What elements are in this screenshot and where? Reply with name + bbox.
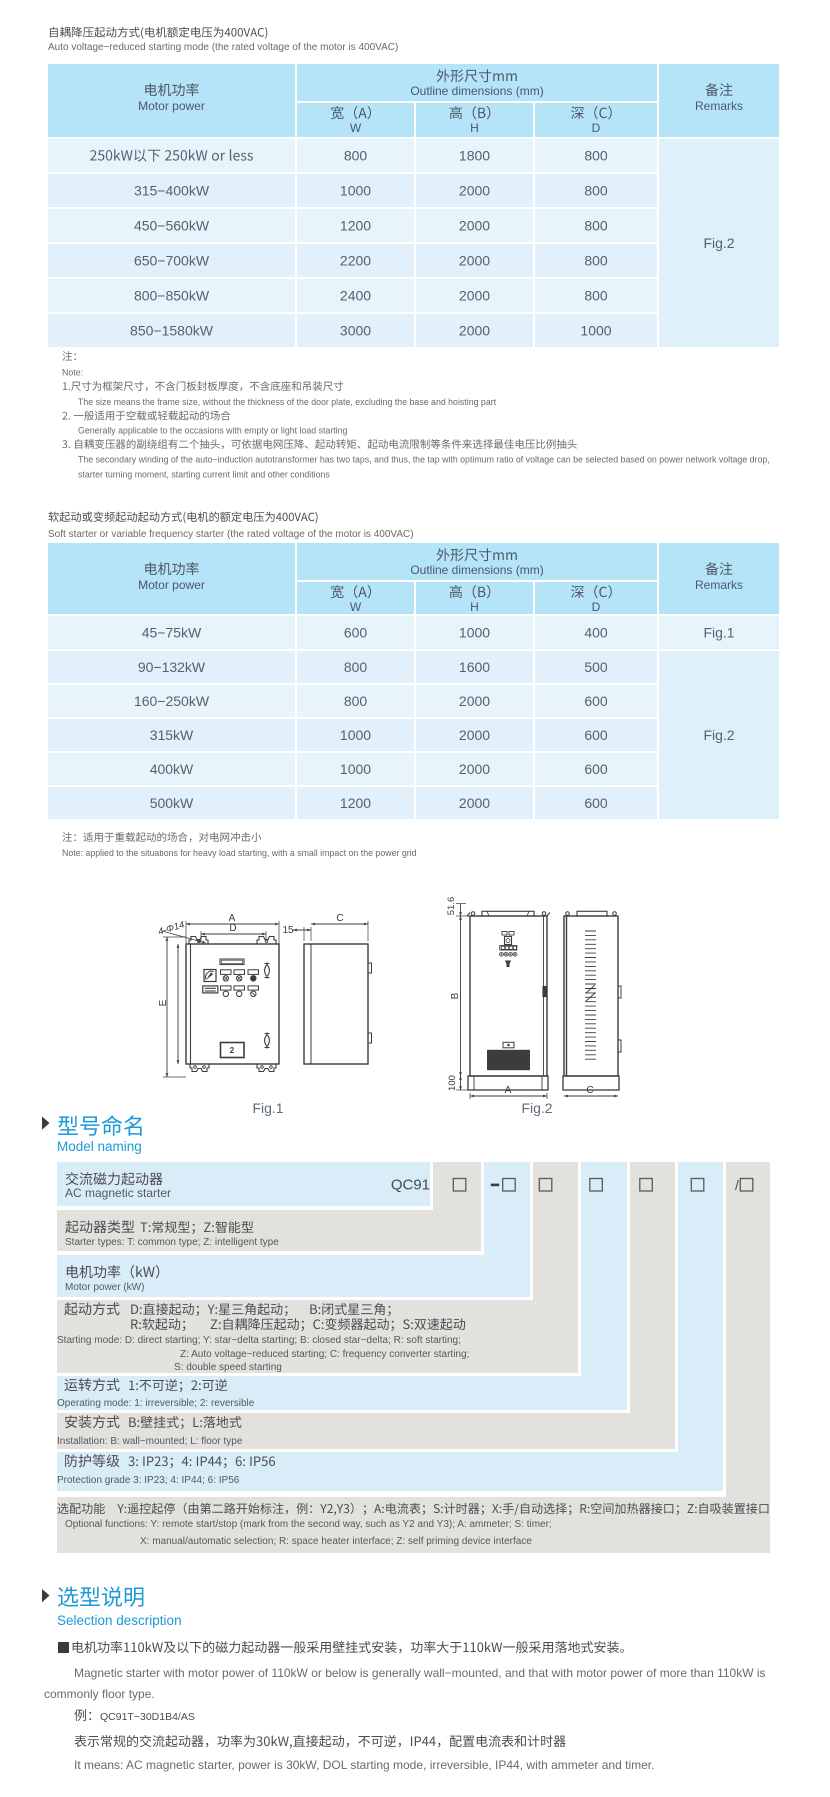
svg-text:400kW: 400kW	[150, 761, 194, 777]
svg-text:W: W	[350, 600, 362, 614]
svg-text:Magnetic starter with motor po: Magnetic starter with motor power of 110…	[74, 1666, 766, 1680]
svg-text:/: /	[735, 1177, 739, 1193]
svg-text:W: W	[350, 121, 362, 135]
svg-text:C: C	[586, 1085, 593, 1096]
svg-text:Outline dimensions (mm): Outline dimensions (mm)	[410, 84, 543, 98]
svg-text:Protection grade 3: IP23; 4:: Protection grade 3: IP23; 4: IP44; 6: IP…	[57, 1475, 240, 1486]
svg-text:D: D	[592, 121, 601, 135]
svg-text:850−1580kW: 850−1580kW	[130, 323, 214, 339]
svg-text:2000: 2000	[459, 323, 490, 339]
svg-text:600: 600	[584, 795, 608, 811]
svg-text:H: H	[470, 121, 479, 135]
svg-text:51.6: 51.6	[446, 897, 457, 916]
svg-text:1200: 1200	[340, 795, 371, 811]
svg-text:B: B	[450, 992, 461, 999]
svg-text:Operating mode: 1: irreversibl: Operating mode: 1: irreversible; 2: reve…	[57, 1398, 255, 1409]
svg-text:600: 600	[584, 727, 608, 743]
svg-text:1800: 1800	[459, 148, 490, 164]
svg-text:600: 600	[344, 625, 368, 641]
svg-text:Remarks: Remarks	[695, 99, 743, 113]
svg-text:160−250kW: 160−250kW	[134, 693, 210, 709]
svg-text:3000: 3000	[340, 323, 371, 339]
svg-text:Fig.2: Fig.2	[521, 1100, 552, 1116]
svg-text:1000: 1000	[580, 323, 611, 339]
svg-text:Note:: Note:	[62, 368, 83, 378]
svg-text:The secondary winding of the a: The secondary winding of the auto−induct…	[78, 455, 770, 465]
svg-text:Motor power: Motor power	[138, 578, 205, 592]
svg-text:starter turning moment, starti: starter turning moment, starting current…	[78, 470, 330, 480]
svg-text:100: 100	[447, 1075, 458, 1091]
svg-text:2000: 2000	[459, 795, 490, 811]
svg-text:2000: 2000	[459, 218, 490, 234]
svg-text:D: D	[592, 600, 601, 614]
svg-text:Fig.2: Fig.2	[703, 235, 734, 251]
svg-text:X: manual/automatic selection;: X: manual/automatic selection; R: space …	[140, 1536, 532, 1547]
svg-text:Soft starter or variable frequ: Soft starter or variable frequency start…	[48, 529, 414, 540]
svg-text:800: 800	[584, 288, 608, 304]
svg-text:S: double speed starting: S: double speed starting	[174, 1362, 282, 1373]
svg-text:Optional functions: Y: remote: Optional functions: Y: remote start/stop…	[65, 1519, 552, 1530]
svg-text:450−560kW: 450−560kW	[134, 218, 210, 234]
svg-text:1000: 1000	[340, 761, 371, 777]
svg-text:1200: 1200	[340, 218, 371, 234]
svg-text:800: 800	[344, 693, 368, 709]
svg-text:800−850kW: 800−850kW	[134, 288, 210, 304]
svg-text:H: H	[470, 600, 479, 614]
svg-text:Note: applied to the situation: Note: applied to the situations for heav…	[62, 848, 417, 858]
svg-text:Fig.1: Fig.1	[703, 625, 734, 641]
svg-text:2000: 2000	[459, 183, 490, 199]
svg-text:2200: 2200	[340, 253, 371, 269]
svg-text:Starter types: T: common type;: Starter types: T: common type; Z: intell…	[65, 1237, 279, 1248]
svg-text:AC magnetic starter: AC magnetic starter	[65, 1186, 171, 1200]
svg-text:800: 800	[584, 183, 608, 199]
svg-text:Z: Auto voltage−reduced starti: Z: Auto voltage−reduced starting; C: fre…	[180, 1349, 469, 1360]
svg-text:Installation: B: wall−mounted;: Installation: B: wall−mounted; L: floor …	[57, 1436, 243, 1447]
svg-text:2000: 2000	[459, 761, 490, 777]
svg-text:Outline dimensions (mm): Outline dimensions (mm)	[410, 563, 543, 577]
svg-text:315kW: 315kW	[150, 727, 194, 743]
svg-text:500: 500	[584, 659, 608, 675]
svg-text:C: C	[336, 913, 343, 924]
svg-text:2: 2	[230, 1046, 235, 1055]
svg-text:The size means the frame size,: The size means the frame size, without t…	[78, 397, 497, 407]
svg-text:commonly floor type.: commonly floor type.	[44, 1687, 155, 1701]
svg-text:1000: 1000	[340, 183, 371, 199]
svg-text:Motor power: Motor power	[138, 99, 205, 113]
svg-text:D: D	[229, 923, 236, 934]
svg-text:500kW: 500kW	[150, 795, 194, 811]
svg-text:Generally applicable to the oc: Generally applicable to the occasions wi…	[78, 426, 348, 436]
svg-text:2000: 2000	[459, 288, 490, 304]
svg-text:400: 400	[584, 625, 608, 641]
svg-text:2000: 2000	[459, 253, 490, 269]
svg-text:Starting mode: D: direct start: Starting mode: D: direct starting; Y: st…	[57, 1335, 461, 1346]
svg-text:Model naming: Model naming	[57, 1139, 142, 1154]
svg-text:800: 800	[584, 148, 608, 164]
svg-text:1000: 1000	[459, 625, 490, 641]
svg-text:Motor power (kW): Motor power (kW)	[65, 1282, 144, 1293]
svg-text:QC91T−30D1B4/AS: QC91T−30D1B4/AS	[100, 1711, 195, 1723]
svg-text:800: 800	[344, 659, 368, 675]
svg-text:15: 15	[282, 925, 294, 936]
svg-text:It means: AC magnetic starter,: It means: AC magnetic starter, power is …	[74, 1758, 654, 1772]
svg-text:800: 800	[584, 218, 608, 234]
svg-text:QC91: QC91	[391, 1177, 430, 1194]
svg-text:600: 600	[584, 693, 608, 709]
svg-text:Auto voltage−reduced starting: Auto voltage−reduced starting mode (the …	[48, 42, 398, 53]
svg-text:2000: 2000	[459, 727, 490, 743]
svg-text:800: 800	[344, 148, 368, 164]
svg-text:Remarks: Remarks	[695, 578, 743, 592]
svg-text:2400: 2400	[340, 288, 371, 304]
svg-text:1000: 1000	[340, 727, 371, 743]
svg-text:Selection description: Selection description	[57, 1613, 182, 1628]
svg-text:2000: 2000	[459, 693, 490, 709]
svg-text:650−700kW: 650−700kW	[134, 253, 210, 269]
svg-text:E: E	[158, 999, 169, 1006]
svg-text:45−75kW: 45−75kW	[142, 625, 202, 641]
svg-text:A: A	[505, 1085, 512, 1096]
svg-text:Fig.1: Fig.1	[252, 1100, 283, 1116]
svg-text:90−132kW: 90−132kW	[138, 659, 206, 675]
svg-text:1600: 1600	[459, 659, 490, 675]
svg-text:315−400kW: 315−400kW	[134, 183, 210, 199]
svg-text:800: 800	[584, 253, 608, 269]
svg-text:600: 600	[584, 761, 608, 777]
svg-text:Fig.2: Fig.2	[703, 727, 734, 743]
